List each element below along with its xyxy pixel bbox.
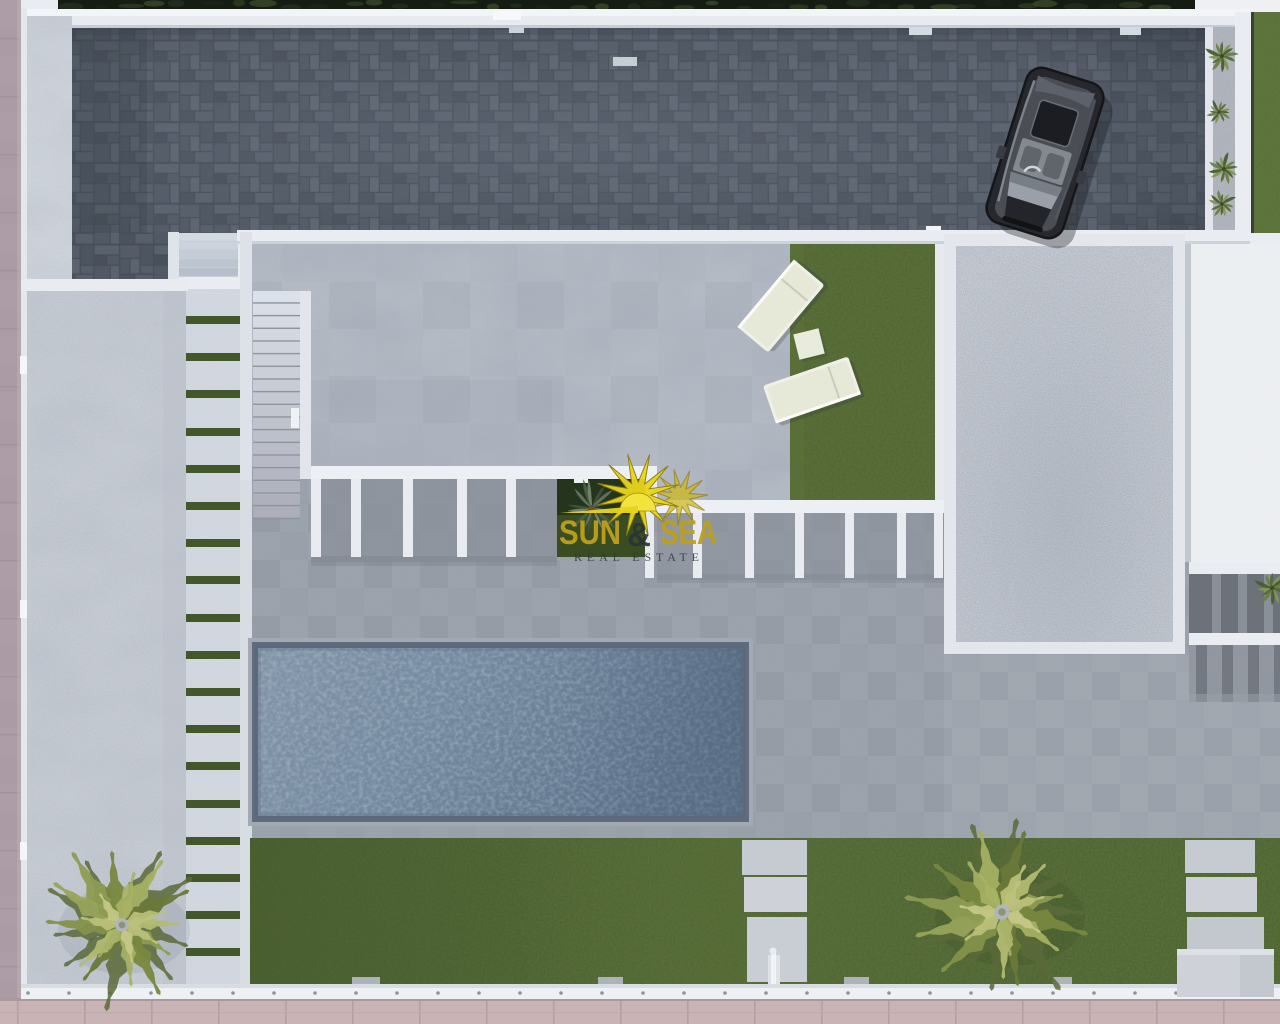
svg-text:REAL ESTATE: REAL ESTATE	[574, 550, 704, 564]
svg-text:&: &	[627, 516, 651, 553]
svg-text:SEA: SEA	[660, 514, 717, 552]
svg-text:SUN: SUN	[559, 514, 621, 552]
